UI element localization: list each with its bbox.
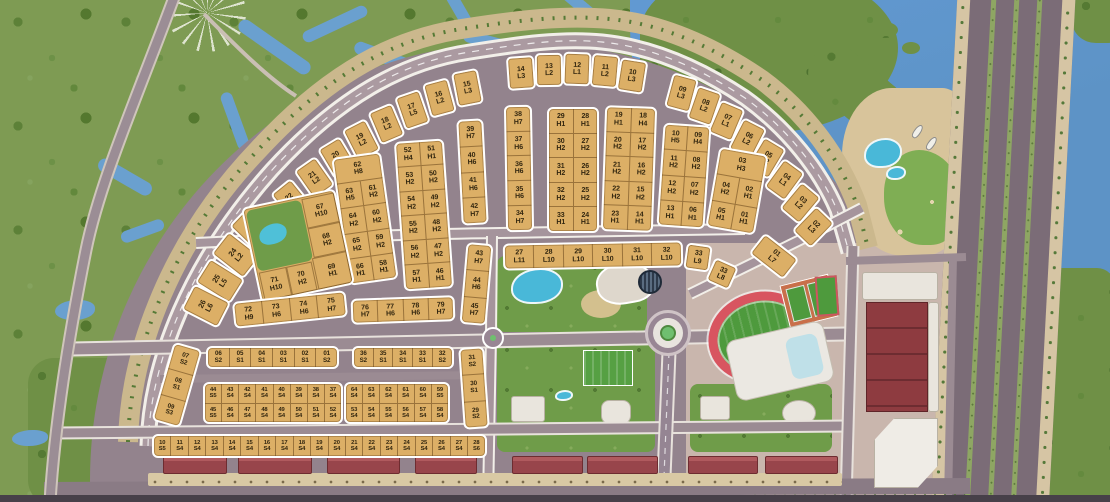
lot-57-H1[interactable]: 57H1 [405, 264, 429, 289]
lot-code: S4 [295, 413, 302, 419]
lot-code: S4 [261, 393, 268, 399]
lot-45-H7[interactable]: 45H7 [462, 296, 487, 324]
lot-code: H1 [556, 219, 565, 226]
lot-code: H5 [346, 195, 356, 204]
lot-58-S4[interactable]: 58S4 [431, 404, 448, 423]
lot-23-H1[interactable]: 23H1 [603, 206, 627, 230]
lot-code: S4 [246, 446, 253, 452]
lot-09-S3[interactable]: 09S3 [154, 394, 186, 426]
lot-52-H4[interactable]: 52H4 [396, 142, 420, 167]
lot-code: H6 [299, 308, 308, 316]
lot-code: H1 [743, 192, 753, 201]
lot-76-H7[interactable]: 76H7 [353, 300, 378, 323]
lot-32-H2[interactable]: 32H2 [549, 183, 573, 207]
lot-47-S4[interactable]: 47S4 [238, 404, 255, 423]
lot-59-S5[interactable]: 59S5 [431, 384, 448, 403]
lot-code: H2 [407, 203, 416, 211]
lot-14-L3[interactable]: 14L3 [506, 55, 536, 91]
lot-60-H2[interactable]: 60H2 [363, 203, 390, 230]
lot-code: S4 [281, 446, 288, 452]
lot-72-H9[interactable]: 72H9 [234, 301, 263, 327]
lot-18-H4[interactable]: 18H4 [630, 108, 655, 132]
lot-row: 45S546S447S448S449S450S451S452S4 [205, 403, 341, 423]
lot-number: 28 [545, 249, 553, 257]
lot-27-S4[interactable]: 27S4 [450, 436, 467, 456]
lot-code: S4 [402, 413, 409, 419]
lot-code: S1 [301, 358, 308, 365]
lot-code: H6 [272, 310, 281, 318]
lot-03-S1[interactable]: 03S1 [272, 348, 294, 367]
lot-24-S4[interactable]: 24S4 [397, 436, 414, 456]
lot-code: S4 [176, 446, 183, 452]
lot-code: S4 [211, 446, 218, 452]
lot-50-S4[interactable]: 50S4 [290, 404, 307, 423]
lot-79-H7[interactable]: 79H7 [427, 297, 453, 320]
lot-code: S4 [421, 446, 428, 452]
lot-row: 55H248H2 [401, 213, 449, 241]
lot-code: S1 [280, 358, 287, 365]
lot-code: H6 [386, 310, 395, 318]
lot-36-H6[interactable]: 36H6 [507, 155, 531, 180]
lot-53-S4[interactable]: 53S4 [346, 404, 362, 423]
lot-01-L7[interactable]: 01L7 [748, 232, 799, 280]
lot-39-H7[interactable]: 39H7 [458, 120, 482, 146]
lot-row: 12H207H2 [660, 174, 706, 202]
lot-50-H2[interactable]: 50H2 [420, 165, 445, 190]
lot-54-S4[interactable]: 54S4 [362, 404, 379, 423]
lot-code: S4 [419, 413, 426, 419]
lot-10-H5[interactable]: 10H5 [664, 125, 687, 151]
lot-number: 24 [581, 212, 589, 219]
lot-code: S4 [438, 446, 445, 452]
lot-code: H2 [376, 241, 386, 250]
lot-code: S5 [210, 413, 217, 419]
lot-62-S4[interactable]: 62S4 [379, 384, 396, 403]
lot-30-H2[interactable]: 30H2 [549, 134, 573, 158]
lot-37-H6[interactable]: 37H6 [506, 130, 530, 155]
lot-60-S4[interactable]: 60S4 [414, 384, 431, 403]
lot-code: H2 [637, 145, 646, 153]
lot-code: S4 [351, 446, 358, 452]
lot-51-S4[interactable]: 51S4 [307, 404, 324, 423]
lot-58-H1[interactable]: 58H1 [370, 253, 397, 280]
lot-block-col2-18: 19H118H420H217H221H216H222H215H223H114H1 [601, 105, 657, 233]
lot-code: H7 [361, 311, 370, 319]
lot-26-S4[interactable]: 26S4 [432, 436, 449, 456]
lot-code: H4 [638, 120, 647, 128]
lot-code: H1 [581, 121, 590, 128]
lot-11-H2[interactable]: 11H2 [662, 150, 685, 176]
lot-code: S2 [215, 358, 222, 365]
lot-code: L1 [573, 69, 581, 77]
lot-code: S4 [402, 393, 409, 399]
lot-code: S4 [312, 413, 319, 419]
lot-number: 32 [663, 247, 671, 255]
lot-number: 30 [557, 138, 565, 145]
lot-16-H2[interactable]: 16H2 [628, 157, 653, 181]
lot-number: 25 [581, 187, 589, 194]
lot-block-row-S32: 36S235S134S133S132S2 [352, 346, 454, 369]
lot-code: S2 [438, 358, 445, 365]
lot-code: L3 [463, 87, 472, 96]
lot-17-S4[interactable]: 17S4 [275, 436, 292, 456]
lot-code: H1 [379, 266, 389, 275]
lot-code: L9 [693, 256, 702, 264]
lot-63-H5[interactable]: 63H5 [337, 182, 363, 209]
bottom-road-edge [0, 495, 1110, 502]
lot-43-S4[interactable]: 43S4 [221, 384, 238, 403]
lot-27-H2[interactable]: 27H2 [573, 134, 598, 158]
lot-40-S4[interactable]: 40S4 [273, 384, 290, 403]
lot-44-S5[interactable]: 44S5 [205, 384, 221, 403]
lot-code: H2 [372, 216, 382, 225]
lot-number: 35 [516, 185, 524, 193]
lot-code: L3 [675, 92, 685, 101]
lot-13-H1[interactable]: 13H1 [659, 200, 682, 226]
lot-46-H1[interactable]: 46H1 [427, 263, 452, 288]
lot-code: S4 [244, 393, 251, 399]
lot-code: S6 [473, 446, 480, 452]
lot-number: 37 [515, 136, 523, 144]
lot-code: S4 [351, 413, 358, 419]
lot-code: S4 [368, 413, 375, 419]
lot-code: H7 [470, 210, 479, 218]
lot-06-S2[interactable]: 06S2 [208, 348, 229, 367]
lot-code: H1 [665, 213, 674, 221]
lot-13-S4[interactable]: 13S4 [205, 436, 222, 456]
lot-code: S4 [368, 446, 375, 452]
lot-78-H6[interactable]: 78H6 [402, 298, 428, 321]
lot-61-H2[interactable]: 61H2 [359, 178, 386, 205]
lot-69-H1[interactable]: 69H1 [312, 251, 353, 290]
lot-code: H2 [667, 188, 676, 196]
lot-21-S4[interactable]: 21S4 [345, 436, 362, 456]
lot-row: 10H509H4 [664, 125, 710, 152]
lot-55-H2[interactable]: 55H2 [401, 215, 425, 240]
lot-51-H1[interactable]: 51H1 [418, 141, 443, 166]
lot-14-S4[interactable]: 14S4 [223, 436, 240, 456]
lot-code: H2 [410, 252, 419, 260]
lot-48-S4[interactable]: 48S4 [255, 404, 272, 423]
lot-code: L10 [543, 256, 555, 264]
lot-code: H1 [614, 119, 623, 127]
lot-row: 29H128H1 [549, 109, 597, 133]
lot-code: H2 [353, 244, 363, 253]
lot-24-H1[interactable]: 24H1 [573, 207, 598, 231]
lot-15-S4[interactable]: 15S4 [240, 436, 257, 456]
lot-33-H1[interactable]: 33H1 [549, 207, 573, 231]
lot-42-H7[interactable]: 42H7 [462, 197, 486, 224]
lot-code: H2 [556, 195, 565, 202]
lot-38-H7[interactable]: 38H7 [506, 107, 530, 131]
lot-37-S4[interactable]: 37S4 [324, 384, 341, 403]
lot-code: S1 [172, 384, 181, 392]
lot-code: L5 [218, 277, 229, 288]
lot-number: 29 [557, 113, 565, 120]
lot-block-col-S789: 07S208S109S3 [151, 341, 202, 428]
lot-28-H1[interactable]: 28H1 [573, 109, 598, 133]
lot-29-H1[interactable]: 29H1 [549, 109, 573, 133]
lot-code: H6 [515, 193, 524, 201]
lot-code: H2 [581, 145, 590, 152]
lot-55-S4[interactable]: 55S4 [379, 404, 396, 423]
lot-12-L1[interactable]: 12L1 [562, 52, 591, 87]
lot-code: S4 [368, 393, 375, 399]
lot-code: S2 [360, 358, 367, 365]
lot-code: H6 [469, 185, 478, 193]
lot-code: L10 [572, 256, 584, 264]
lot-11-S4[interactable]: 11S4 [170, 436, 187, 456]
lot-25-H2[interactable]: 25H2 [573, 183, 598, 207]
lot-code: H1 [328, 269, 338, 278]
lot-41-S4[interactable]: 41S4 [255, 384, 272, 403]
lot-74-H6[interactable]: 74H6 [288, 295, 318, 321]
lot-code: S4 [298, 446, 305, 452]
lot-15-H2[interactable]: 15H2 [627, 182, 652, 206]
lot-code: L2 [600, 71, 609, 79]
lot-05-S1[interactable]: 05S1 [229, 348, 251, 367]
lot-49-H2[interactable]: 49H2 [422, 189, 447, 214]
lot-22-H2[interactable]: 22H2 [604, 181, 628, 205]
lot-number: 30 [604, 248, 612, 256]
lot-code: H2 [434, 250, 443, 258]
lot-code: L5 [408, 109, 418, 119]
lot-49-S4[interactable]: 49S4 [273, 404, 290, 423]
lot-15-L3[interactable]: 15L3 [450, 68, 483, 108]
lot-code: H2 [429, 177, 438, 185]
lot-block-col-43: 43H744H645H7 [459, 242, 493, 326]
lot-38-S4[interactable]: 38S4 [307, 384, 324, 403]
lot-01-S2[interactable]: 01S2 [315, 348, 337, 367]
lot-code: H7 [514, 119, 523, 127]
lot-28-L10[interactable]: 28L10 [533, 245, 563, 269]
lot-47-H2[interactable]: 47H2 [425, 238, 450, 263]
lot-code: H5 [671, 137, 680, 145]
lot-12-H2[interactable]: 12H2 [660, 175, 683, 201]
lot-code: S4 [278, 393, 285, 399]
lot-21-H2[interactable]: 21H2 [605, 156, 629, 180]
lot-29-S2[interactable]: 29S2 [464, 400, 488, 428]
lot-row: 13H106H1 [659, 199, 705, 227]
lot-block-row-72: 72H973H674H675H7 [232, 290, 348, 329]
lot-61-S4[interactable]: 61S4 [397, 384, 414, 403]
lot-code: S4 [227, 413, 234, 419]
lot-06-H1[interactable]: 06H1 [680, 202, 704, 228]
lot-code: H2 [556, 170, 565, 177]
lot-57-S4[interactable]: 57S4 [414, 404, 431, 423]
lot-number: 33 [557, 212, 565, 219]
lot-block-row-76: 76H777H678H679H7 [351, 295, 456, 325]
lot-number: 28 [581, 113, 589, 120]
lot-row: 11H208H2 [662, 149, 708, 177]
lot-code: H7 [474, 257, 483, 265]
lot-block-col-38: 38H737H636H635H634H7 [504, 105, 534, 232]
lot-33-L9[interactable]: 33L9 [683, 242, 713, 272]
lot-14-H1[interactable]: 14H1 [626, 206, 651, 230]
lot-46-S4[interactable]: 46S4 [221, 404, 238, 423]
lot-40-H6[interactable]: 40H6 [460, 145, 484, 172]
lot-43-H7[interactable]: 43H7 [466, 244, 491, 271]
lot-13-L2[interactable]: 13L2 [535, 53, 564, 87]
lot-56-S4[interactable]: 56S4 [397, 404, 414, 423]
lot-35-H6[interactable]: 35H6 [507, 180, 531, 205]
lot-64-S4[interactable]: 64S4 [346, 384, 362, 403]
lot-32-L10[interactable]: 32L10 [651, 242, 681, 266]
lot-code: L3 [517, 73, 525, 81]
lot-code: S1 [236, 358, 243, 365]
lot-code: L3 [627, 75, 636, 84]
lot-code: H3 [736, 164, 746, 173]
lot-18-S4[interactable]: 18S4 [293, 436, 310, 456]
lot-number: 26 [581, 163, 589, 170]
lot-07-H2[interactable]: 07H2 [682, 176, 706, 202]
lot-22-S4[interactable]: 22S4 [362, 436, 379, 456]
lot-26-H2[interactable]: 26H2 [573, 158, 598, 182]
lot-09-H4[interactable]: 09H4 [685, 126, 709, 152]
lot-block-park-block-67: 67H1068H269H171H1070H2 [241, 188, 355, 304]
lot-code: L1 [719, 119, 729, 129]
lot-code: S4 [455, 446, 462, 452]
lot-64-H2[interactable]: 64H2 [341, 207, 367, 234]
lot-number: 31 [557, 163, 565, 170]
lot-28-S6[interactable]: 28S6 [467, 436, 484, 456]
lot-code: L2 [382, 122, 392, 132]
lot-29-L10[interactable]: 29L10 [563, 244, 593, 268]
lot-04-S1[interactable]: 04S1 [250, 348, 272, 367]
lot-code: S4 [386, 446, 393, 452]
pocket-park-pond [257, 221, 289, 246]
lot-block-col-39: 39H740H641H642H7 [456, 118, 489, 225]
lot-code: H6 [467, 159, 476, 167]
lot-code: H2 [613, 144, 622, 152]
lot-code: H1 [715, 214, 725, 223]
lot-16-S4[interactable]: 16S4 [258, 436, 275, 456]
lot-code: H7 [436, 309, 445, 317]
lot-35-S1[interactable]: 35S1 [373, 348, 393, 367]
lot-34-H7[interactable]: 34H7 [508, 205, 532, 230]
lot-code: L10 [602, 255, 614, 263]
lot-code: H1 [356, 269, 366, 278]
lot-17-H2[interactable]: 17H2 [629, 133, 654, 157]
lot-code: H9 [244, 313, 253, 321]
lot-36-S2[interactable]: 36S2 [354, 348, 373, 367]
lot-row: 22H215H2 [604, 180, 653, 206]
lot-code: H2 [612, 168, 621, 176]
lot-row: 30H227H2 [549, 133, 597, 158]
lot-code: S4 [385, 393, 392, 399]
lot-code: H10 [269, 283, 283, 293]
lot-31-H2[interactable]: 31H2 [549, 158, 573, 182]
lot-63-S4[interactable]: 63S4 [362, 384, 379, 403]
lot-code: H1 [688, 214, 697, 222]
lot-77-H6[interactable]: 77H6 [377, 299, 403, 322]
lot-33-S1[interactable]: 33S1 [412, 348, 432, 367]
lot-block-col2-03: 03H304H202H105H101H1 [705, 146, 768, 235]
lot-code: S4 [261, 413, 268, 419]
lot-48-H2[interactable]: 48H2 [424, 214, 449, 239]
lot-code: H7 [327, 305, 336, 313]
lot-54-H2[interactable]: 54H2 [399, 191, 423, 216]
lot-code: H2 [581, 170, 590, 177]
lot-30-S1[interactable]: 30S1 [462, 374, 486, 402]
lot-code: H10 [314, 209, 328, 219]
lot-code: H2 [405, 179, 414, 187]
lot-number: 34 [516, 210, 524, 218]
lot-20-H2[interactable]: 20H2 [605, 132, 629, 156]
lot-code: S4 [194, 446, 201, 452]
lot-code: S5 [210, 393, 217, 399]
lot-code: S4 [333, 446, 340, 452]
lot-code: H2 [611, 193, 620, 201]
lot-45-S5[interactable]: 45S5 [205, 404, 221, 423]
lot-code: H1 [427, 153, 436, 161]
lot-block-col2-28: 29H128H130H227H231H226H232H225H233H124H1 [547, 107, 599, 233]
lot-56-H2[interactable]: 56H2 [403, 240, 427, 265]
lot-10-L3[interactable]: 10L3 [616, 57, 649, 95]
lot-19-S4[interactable]: 19S4 [310, 436, 327, 456]
lot-block-grid-S44: 44S543S442S441S440S439S438S437S445S546S4… [203, 382, 343, 424]
lot-number: 27 [515, 249, 523, 257]
lot-12-S4[interactable]: 12S4 [188, 436, 205, 456]
lot-53-H2[interactable]: 53H2 [398, 167, 422, 192]
lot-30-L10[interactable]: 30L10 [592, 243, 622, 267]
lot-01-H1[interactable]: 01H1 [730, 204, 758, 233]
lot-code: S4 [295, 393, 302, 399]
lot-42-S4[interactable]: 42S4 [238, 384, 255, 403]
lot-52-S4[interactable]: 52S4 [324, 404, 341, 423]
lot-19-H1[interactable]: 19H1 [606, 107, 630, 131]
lot-number: 38 [514, 111, 522, 119]
lot-20-S4[interactable]: 20S4 [328, 436, 345, 456]
lot-23-S4[interactable]: 23S4 [380, 436, 397, 456]
lot-code: S3 [164, 409, 173, 417]
lot-block-grid-S64: 64S463S462S461S460S459S553S454S455S456S4… [344, 382, 450, 424]
lot-02-H1[interactable]: 02H1 [734, 178, 762, 207]
lot-34-S1[interactable]: 34S1 [392, 348, 412, 367]
lot-code: L11 [514, 257, 526, 265]
lot-block-row-S10: 10S511S412S413S414S415S416S417S418S419S4… [152, 434, 487, 458]
lot-code: S1 [258, 358, 265, 365]
lot-32-S2[interactable]: 32S2 [432, 348, 452, 367]
lot-code: H7 [515, 218, 524, 226]
lot-code: H8 [354, 168, 364, 177]
lot-code: S5 [159, 446, 166, 452]
lot-code: H7 [466, 133, 475, 141]
lot-25-S4[interactable]: 25S4 [415, 436, 432, 456]
lot-73-H6[interactable]: 73H6 [261, 298, 291, 324]
lot-code: L2 [233, 252, 245, 264]
lot-31-S2[interactable]: 31S2 [460, 348, 484, 375]
masterplan-map: 15L316L217L518L219L220L121L222L323L324L2… [0, 0, 1110, 502]
lot-code: S4 [329, 413, 336, 419]
lot-41-H6[interactable]: 41H6 [461, 171, 485, 198]
lot-code: H1 [610, 218, 619, 226]
lot-code: L2 [545, 70, 553, 78]
lot-27-L11[interactable]: 27L11 [505, 245, 534, 268]
lot-block-row-S01: 06S205S104S103S102S101S2 [206, 346, 339, 369]
lot-39-S4[interactable]: 39S4 [290, 384, 307, 403]
lot-02-S1[interactable]: 02S1 [294, 348, 316, 367]
lot-59-H2[interactable]: 59H2 [366, 228, 393, 255]
lot-08-H2[interactable]: 08H2 [684, 151, 708, 177]
lot-block-col2-09: 10H509H411H208H212H207H213H106H1 [656, 122, 711, 229]
lot-31-L10[interactable]: 31L10 [622, 243, 652, 267]
lot-10-S5[interactable]: 10S5 [154, 436, 170, 456]
lot-44-H6[interactable]: 44H6 [464, 269, 489, 297]
lot-75-H7[interactable]: 75H7 [316, 292, 346, 318]
lot-code: S2 [472, 414, 480, 421]
lot-row: 19H118H4 [606, 107, 655, 132]
